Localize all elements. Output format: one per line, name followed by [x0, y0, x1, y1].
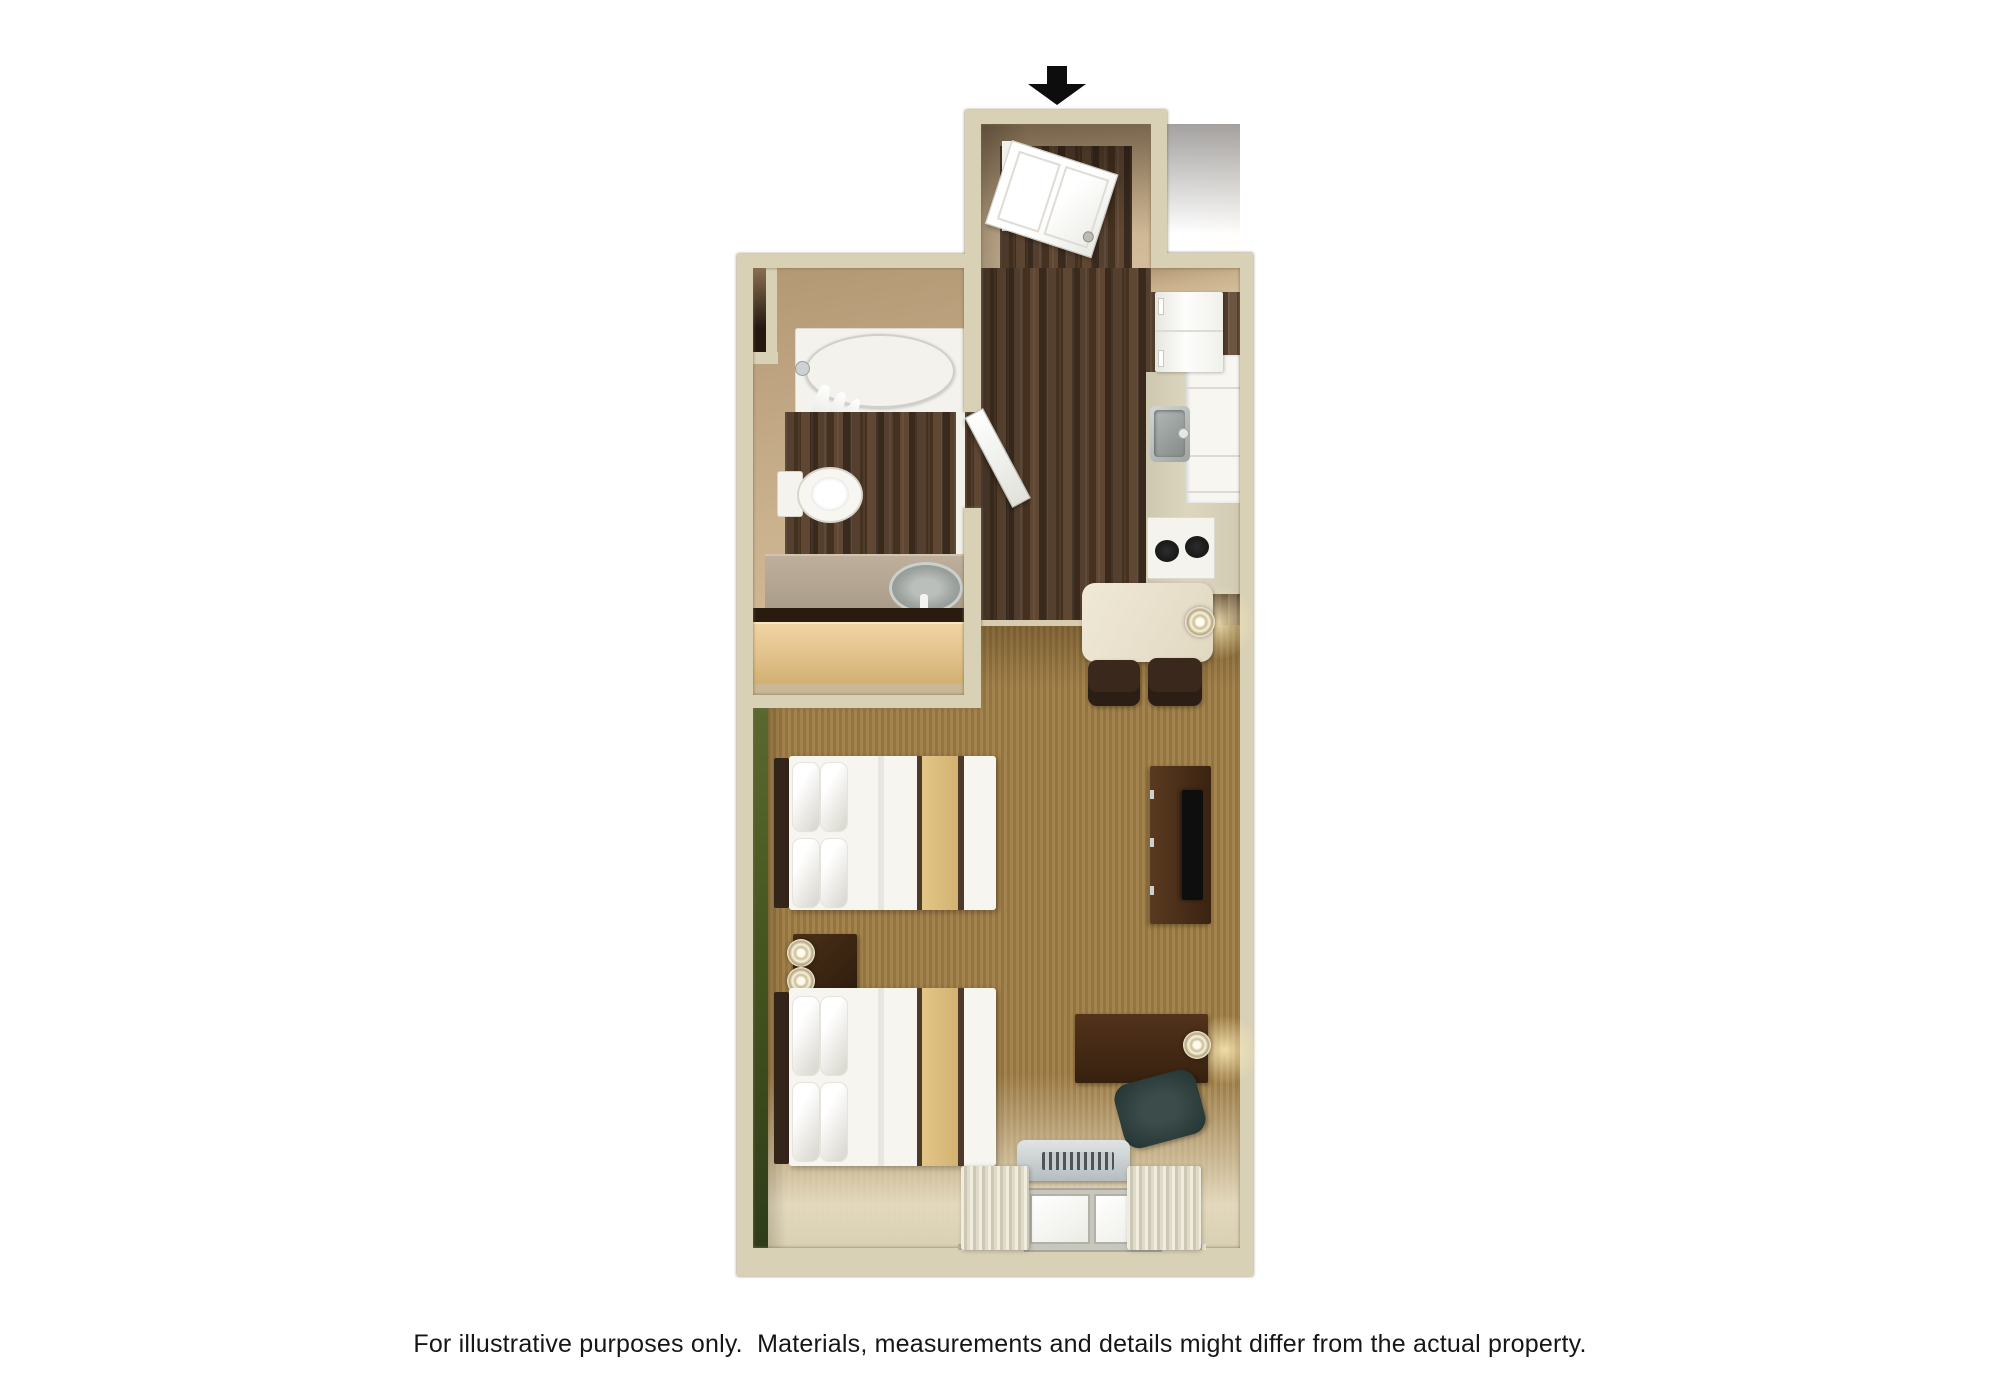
- bed-stripe-tan: [922, 988, 958, 1166]
- bed-sheet-fold: [878, 988, 884, 1166]
- bed-pillow: [792, 996, 820, 1076]
- bottom-exterior-wall: [737, 1248, 1253, 1276]
- disclaimer-text: For illustrative purposes only. Material…: [0, 1330, 2000, 1359]
- vestibule-left-wall: [965, 110, 981, 268]
- curtain: [1127, 1166, 1201, 1250]
- dining-chair: [1148, 658, 1202, 706]
- bed-pillow: [820, 996, 848, 1076]
- bed-pillow: [792, 762, 820, 832]
- bed-2: [774, 988, 996, 1166]
- bed-pillow: [820, 762, 848, 832]
- drawer-handle: [1150, 790, 1154, 799]
- desk-lamp-top-view: [1183, 1031, 1211, 1059]
- bed-1: [774, 756, 996, 910]
- ac-unit: [1017, 1140, 1130, 1181]
- bed-pillow: [792, 1082, 820, 1162]
- bed-headboard: [774, 758, 789, 908]
- bed-pillow: [792, 838, 820, 908]
- vestibule-top-wall: [965, 110, 1167, 124]
- vestibule-right-wall: [1151, 110, 1167, 254]
- bathroom-top-wall: [737, 254, 981, 268]
- drawer-handle: [1150, 838, 1154, 847]
- ac-vent-grille: [1042, 1152, 1114, 1170]
- kitchen-top-wall: [1151, 253, 1253, 268]
- dressing-area-bottom-wall: [737, 695, 981, 708]
- left-exterior-wall: [737, 254, 753, 1276]
- window-pane: [1030, 1194, 1090, 1244]
- right-exterior-wall: [1240, 253, 1253, 1276]
- bathroom-hall-wall-lower: [964, 508, 981, 708]
- bed-stripe-edge: [958, 756, 964, 910]
- tv: [1182, 790, 1203, 900]
- table-lamp-top-view: [1185, 607, 1215, 637]
- table-lamp-top-view: [787, 939, 815, 967]
- bed-stripe-tan: [922, 756, 958, 910]
- bed-sheet-fold: [878, 756, 884, 910]
- curtain: [961, 1166, 1029, 1250]
- bathroom-hall-wall-upper: [964, 268, 981, 412]
- bed-pillow: [820, 1082, 848, 1162]
- bed-stripe-edge: [958, 988, 964, 1166]
- bed-pillow: [820, 838, 848, 908]
- dining-chair: [1088, 660, 1140, 706]
- floor-plan-canvas: For illustrative purposes only. Material…: [0, 0, 2000, 1400]
- drawer-handle: [1150, 886, 1154, 895]
- bed-headboard: [774, 992, 789, 1164]
